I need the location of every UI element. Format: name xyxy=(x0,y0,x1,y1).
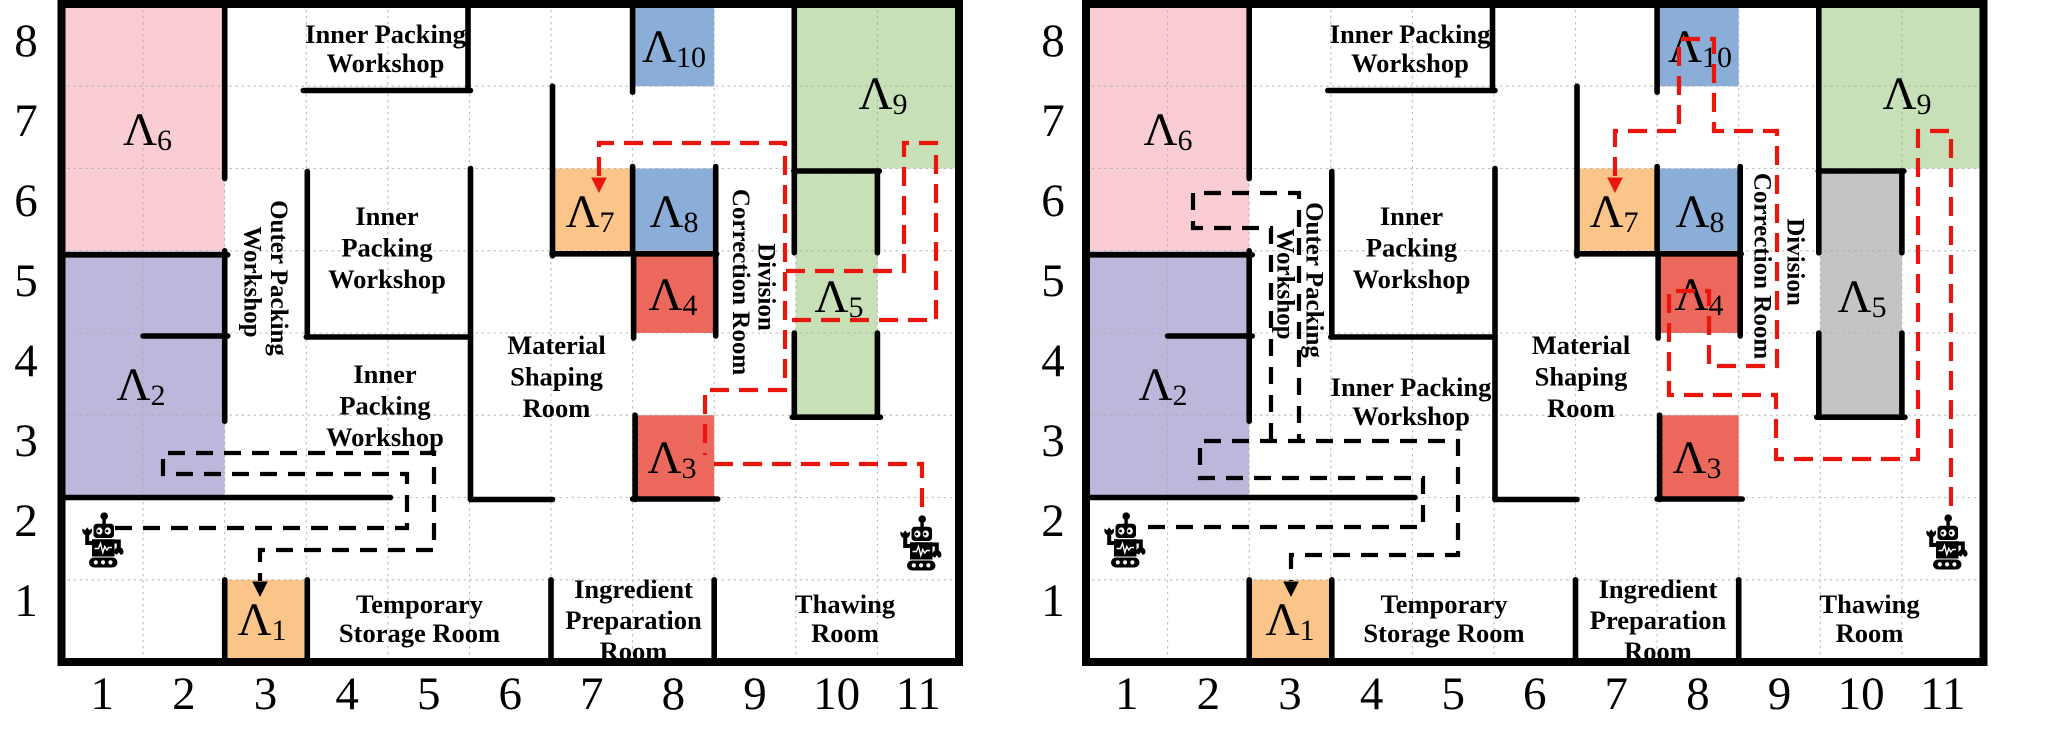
svg-text:Workshop: Workshop xyxy=(239,226,266,337)
svg-text:7: 7 xyxy=(580,668,604,720)
svg-text:Workshop: Workshop xyxy=(1272,228,1299,339)
svg-text:Workshop: Workshop xyxy=(326,422,444,452)
svg-text:Packing: Packing xyxy=(339,391,430,421)
svg-text:Packing: Packing xyxy=(1366,233,1457,263)
svg-text:Workshop: Workshop xyxy=(328,264,446,294)
svg-text:7: 7 xyxy=(1605,668,1629,720)
svg-text:4: 4 xyxy=(335,668,359,720)
svg-text:Correction Room: Correction Room xyxy=(727,189,754,375)
svg-text:4: 4 xyxy=(1041,335,1065,387)
svg-text:7: 7 xyxy=(1041,95,1065,147)
svg-text:Preparation: Preparation xyxy=(565,605,702,635)
svg-text:1: 1 xyxy=(91,668,115,720)
svg-text:7: 7 xyxy=(14,95,38,147)
svg-text:Room: Room xyxy=(1547,393,1615,423)
svg-text:Outer Packing: Outer Packing xyxy=(265,200,292,356)
svg-text:9: 9 xyxy=(743,668,767,720)
svg-text:Temporary: Temporary xyxy=(1380,589,1507,619)
svg-text:10: 10 xyxy=(813,668,860,720)
svg-text:Inner Packing: Inner Packing xyxy=(1331,372,1492,402)
svg-text:Inner: Inner xyxy=(355,201,419,231)
svg-text:Room: Room xyxy=(811,618,879,648)
svg-text:Shaping: Shaping xyxy=(510,362,603,392)
svg-text:3: 3 xyxy=(14,415,38,467)
svg-text:9: 9 xyxy=(1768,668,1792,720)
svg-text:1: 1 xyxy=(1115,668,1139,720)
svg-text:6: 6 xyxy=(498,668,522,720)
svg-text:4: 4 xyxy=(1360,668,1384,720)
svg-text:Packing: Packing xyxy=(341,233,432,263)
svg-text:Room: Room xyxy=(1624,636,1692,666)
svg-text:Inner Packing: Inner Packing xyxy=(1330,19,1491,49)
svg-text:Room: Room xyxy=(600,636,668,666)
svg-text:3: 3 xyxy=(254,668,278,720)
svg-text:8: 8 xyxy=(1041,15,1065,67)
svg-text:Division: Division xyxy=(1782,218,1809,306)
svg-text:Thawing: Thawing xyxy=(1819,589,1919,619)
svg-text:Temporary: Temporary xyxy=(356,589,483,619)
svg-text:Thawing: Thawing xyxy=(795,589,895,619)
svg-text:Preparation: Preparation xyxy=(1590,605,1727,635)
svg-text:Division: Division xyxy=(753,243,780,331)
svg-text:3: 3 xyxy=(1278,668,1302,720)
svg-text:1: 1 xyxy=(1041,575,1065,627)
svg-text:Room: Room xyxy=(1836,618,1904,648)
svg-text:Inner Packing: Inner Packing xyxy=(305,19,466,49)
svg-text:Inner: Inner xyxy=(1380,201,1444,231)
svg-text:Workshop: Workshop xyxy=(1351,48,1469,78)
svg-text:8: 8 xyxy=(662,668,686,720)
svg-text:6: 6 xyxy=(1041,175,1065,227)
svg-text:5: 5 xyxy=(1441,668,1465,720)
svg-text:4: 4 xyxy=(14,335,38,387)
svg-text:2: 2 xyxy=(14,495,38,547)
svg-text:2: 2 xyxy=(1041,495,1065,547)
svg-text:8: 8 xyxy=(1686,668,1710,720)
svg-text:10: 10 xyxy=(1838,668,1885,720)
svg-text:Shaping: Shaping xyxy=(1535,362,1628,392)
svg-text:2: 2 xyxy=(1197,668,1221,720)
svg-text:5: 5 xyxy=(417,668,441,720)
svg-text:Ingredient: Ingredient xyxy=(574,574,693,604)
svg-text:Correction Room: Correction Room xyxy=(1749,173,1776,359)
svg-text:6: 6 xyxy=(14,175,38,227)
svg-text:Storage Room: Storage Room xyxy=(339,618,500,648)
svg-text:Workshop: Workshop xyxy=(1353,264,1471,294)
svg-text:1: 1 xyxy=(14,575,38,627)
svg-text:6: 6 xyxy=(1523,668,1547,720)
svg-text:Workshop: Workshop xyxy=(1352,401,1470,431)
svg-text:Ingredient: Ingredient xyxy=(1599,574,1718,604)
svg-text:Storage Room: Storage Room xyxy=(1363,618,1524,648)
svg-text:5: 5 xyxy=(14,255,38,307)
svg-text:11: 11 xyxy=(896,668,941,720)
svg-text:8: 8 xyxy=(14,15,38,67)
svg-text:2: 2 xyxy=(172,668,196,720)
svg-text:Room: Room xyxy=(523,393,591,423)
svg-text:3: 3 xyxy=(1041,415,1065,467)
svg-text:Inner: Inner xyxy=(353,359,417,389)
svg-text:Workshop: Workshop xyxy=(327,48,445,78)
svg-text:5: 5 xyxy=(1041,255,1065,307)
svg-text:11: 11 xyxy=(1920,668,1965,720)
svg-text:Material: Material xyxy=(1532,330,1631,360)
svg-text:Material: Material xyxy=(507,330,606,360)
svg-text:Outer Packing: Outer Packing xyxy=(1301,202,1328,358)
